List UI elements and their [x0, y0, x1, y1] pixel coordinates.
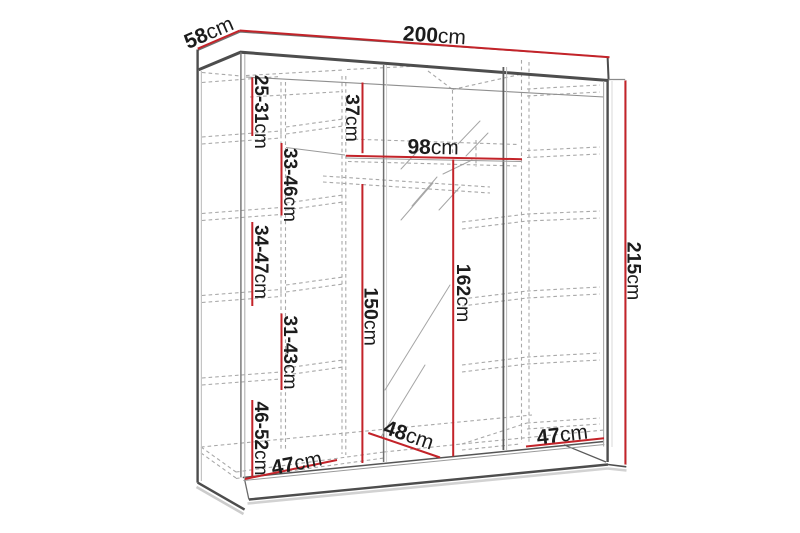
svg-text:215cm: 215cm: [623, 242, 645, 301]
svg-text:200cm: 200cm: [402, 22, 466, 49]
svg-text:98cm: 98cm: [407, 136, 459, 160]
svg-text:34-47cm: 34-47cm: [250, 225, 271, 299]
svg-text:25-31cm: 25-31cm: [250, 75, 271, 149]
svg-text:33-46cm: 33-46cm: [279, 148, 300, 222]
svg-text:150cm: 150cm: [360, 287, 382, 346]
svg-text:37cm: 37cm: [341, 94, 363, 142]
svg-text:162cm: 162cm: [452, 264, 474, 323]
svg-text:31-43cm: 31-43cm: [279, 316, 300, 390]
svg-text:46-52cm: 46-52cm: [250, 402, 271, 476]
